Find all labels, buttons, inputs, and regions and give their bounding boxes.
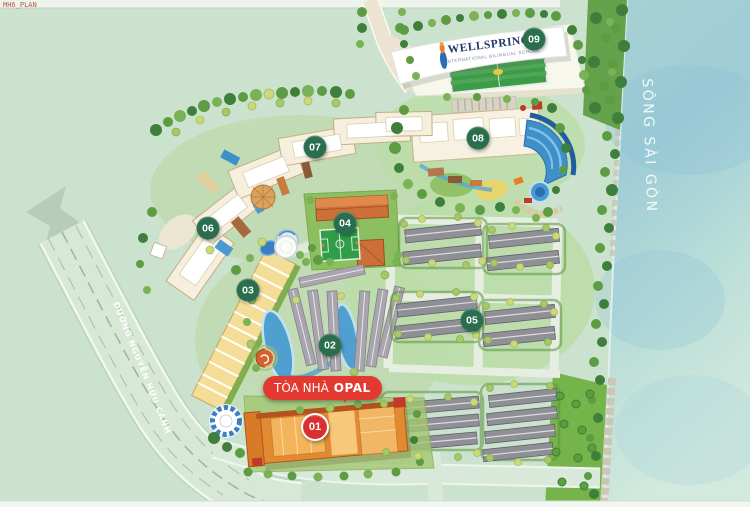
zone-marker-label: 08 [472, 132, 484, 144]
zone-marker[interactable]: 07 [304, 136, 327, 159]
zone-marker-label: 07 [309, 141, 321, 153]
zone-marker[interactable]: 05 [461, 309, 484, 332]
opal-building-badge[interactable]: TÒA NHÀ OPAL [263, 376, 382, 400]
zone-marker-label: 04 [339, 217, 351, 229]
bottom-frame [0, 501, 750, 507]
zone-marker[interactable]: 09 [523, 28, 546, 51]
site-plan-graphic [0, 0, 750, 507]
fan-plaza [251, 185, 275, 209]
zone-marker-label: 09 [528, 33, 540, 45]
zone-marker-label: 03 [242, 284, 254, 296]
zone-marker[interactable]: 06 [197, 217, 220, 240]
zone-marker[interactable]: 04 [334, 212, 357, 235]
zone-marker[interactable]: 01 [301, 413, 329, 441]
zone-marker-label: 02 [324, 339, 336, 351]
site-plan-map: MH6_PLAN SÔNG SÀI GÒN ĐƯỜNG NGUYỄN HỮU C… [0, 0, 750, 507]
watermark-text: MH6_PLAN [3, 1, 37, 9]
north-boundary-wall [0, 0, 560, 8]
zone-marker[interactable]: 08 [467, 127, 490, 150]
opal-badge-prefix: TÒA NHÀ [274, 381, 329, 395]
zone-marker[interactable]: 02 [319, 334, 342, 357]
zone-marker-label: 06 [202, 222, 214, 234]
zone-marker[interactable]: 03 [237, 279, 260, 302]
zone-marker-label: 05 [466, 314, 478, 326]
zone-marker-label: 01 [309, 421, 321, 433]
opal-badge-name: OPAL [334, 381, 371, 395]
